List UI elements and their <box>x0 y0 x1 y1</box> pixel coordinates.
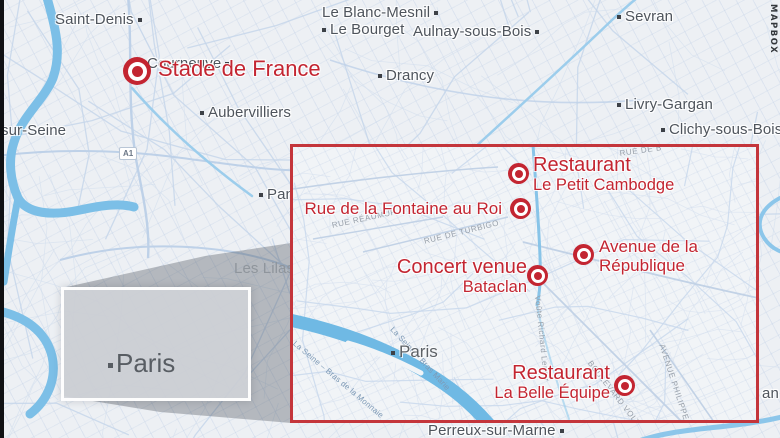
stade-de-france-marker <box>123 57 151 85</box>
republique-label: Avenue de la République <box>599 237 698 275</box>
place-les-lilas: Les Lilas <box>234 260 294 277</box>
belle-equipe-label: Restaurant La Belle Équipe <box>494 362 610 403</box>
town-dot <box>617 15 621 19</box>
place-clichy-sous-bois: Clichy-sous-Bois <box>661 121 780 138</box>
fontaine-au-roi-label: Rue de la Fontaine au Roi <box>304 199 502 218</box>
map-canvas: Saint-Denis Le Blanc-Mesnil Le Bourget A… <box>0 0 780 438</box>
bataclan-marker <box>527 265 548 286</box>
town-dot <box>617 103 621 107</box>
place-sur-seine: sur-Seine <box>1 122 66 139</box>
town-dot <box>322 28 326 32</box>
place-aulnay-sous-bois: Aulnay-sous-Bois <box>413 23 539 40</box>
place-perreux-sur-marne: Perreux-sur-Marne <box>428 422 564 438</box>
seine-loop-south <box>0 310 53 414</box>
city-dot <box>108 363 113 368</box>
place-aubervilliers: Aubervilliers <box>200 104 291 121</box>
bataclan-label: Concert venue Bataclan <box>397 256 527 297</box>
belle-equipe-marker <box>614 375 635 396</box>
town-dot <box>378 74 382 78</box>
mapbox-attribution: MAPBOX <box>768 4 778 54</box>
place-livry-gargan: Livry-Gargan <box>617 96 713 113</box>
road-badge-a1: A1 <box>119 147 137 160</box>
town-dot <box>434 11 438 15</box>
place-drancy: Drancy <box>378 67 434 84</box>
place-le-bourget: Le Bourget <box>322 21 404 38</box>
paris-locator-box: Paris <box>61 287 251 401</box>
town-dot <box>200 111 204 115</box>
stade-de-france-label: Stade de France <box>158 57 321 82</box>
town-dot <box>535 30 539 34</box>
place-saint-denis: Saint-Denis <box>55 11 142 28</box>
petit-cambodge-label: Restaurant Le Petit Cambodge <box>533 154 674 195</box>
town-dot <box>661 128 665 132</box>
attack-sites-inset-map: RUE DE B RUE RÉAUMUR RUE DE TURBIGO Voût… <box>290 144 759 423</box>
town-dot <box>560 429 564 433</box>
paris-locator-label: Paris <box>108 348 175 379</box>
place-cutoff-label: an <box>762 385 779 402</box>
letterbox-edge <box>0 0 4 438</box>
seine-river <box>11 0 134 213</box>
town-dot <box>138 18 142 22</box>
fontaine-au-roi-marker <box>510 198 531 219</box>
town-dot <box>259 193 263 197</box>
petit-cambodge-marker <box>508 163 529 184</box>
marne-river-east <box>760 196 780 252</box>
city-dot <box>391 351 395 355</box>
place-paris-inset: Paris <box>391 342 438 362</box>
place-le-blanc-mesnil: Le Blanc-Mesnil <box>322 4 438 21</box>
republique-marker <box>573 244 594 265</box>
place-sevran: Sevran <box>617 8 673 25</box>
